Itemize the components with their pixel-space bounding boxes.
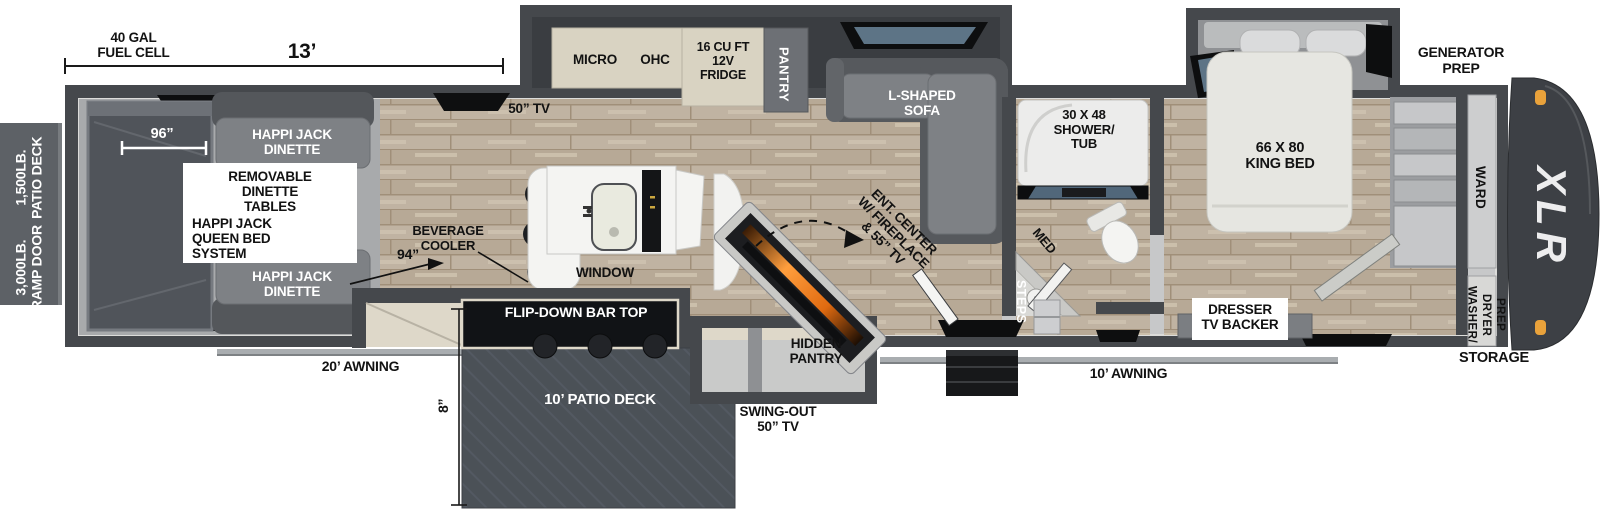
- shower-tub: [1018, 100, 1148, 186]
- bedroom-right-wall: [1456, 97, 1468, 335]
- ward-closet: [1468, 95, 1496, 268]
- floorplan-graphics: [0, 0, 1600, 513]
- hall-bottom-window: [1096, 330, 1140, 342]
- ramp-door-panel: [0, 123, 62, 305]
- bedslide-right-window: [1366, 24, 1392, 78]
- fridge: [682, 28, 764, 106]
- bedroom-bottom-window: [1300, 334, 1392, 346]
- island-appliance-panel: [642, 170, 661, 252]
- ramp-door-panel-edge: [58, 123, 62, 305]
- kitchen-slide-window-glass: [854, 27, 976, 44]
- hall-steps: [1034, 300, 1060, 334]
- front-cap: [1508, 78, 1600, 350]
- dim-13ft-line: [65, 58, 503, 74]
- dinette-sofa-front: [212, 92, 374, 168]
- garage-info-box: [183, 163, 357, 263]
- king-bed: [1207, 52, 1352, 232]
- shower-glass: [1018, 186, 1148, 199]
- pantry-cabinet: [764, 28, 808, 112]
- kitchen-counter: [552, 28, 682, 88]
- island-sink: [592, 184, 636, 250]
- floorplan-canvas: 40 GAL FUEL CELL 13’ 1,500LB. PATIO DECK…: [0, 0, 1600, 513]
- clearance-light-top: [1535, 90, 1546, 105]
- island-faucet: [583, 206, 592, 209]
- entry-steps: [946, 350, 1018, 396]
- clearance-light-bottom: [1535, 320, 1546, 335]
- tv-50: [433, 93, 510, 111]
- washer-dryer-recess: [1468, 276, 1496, 346]
